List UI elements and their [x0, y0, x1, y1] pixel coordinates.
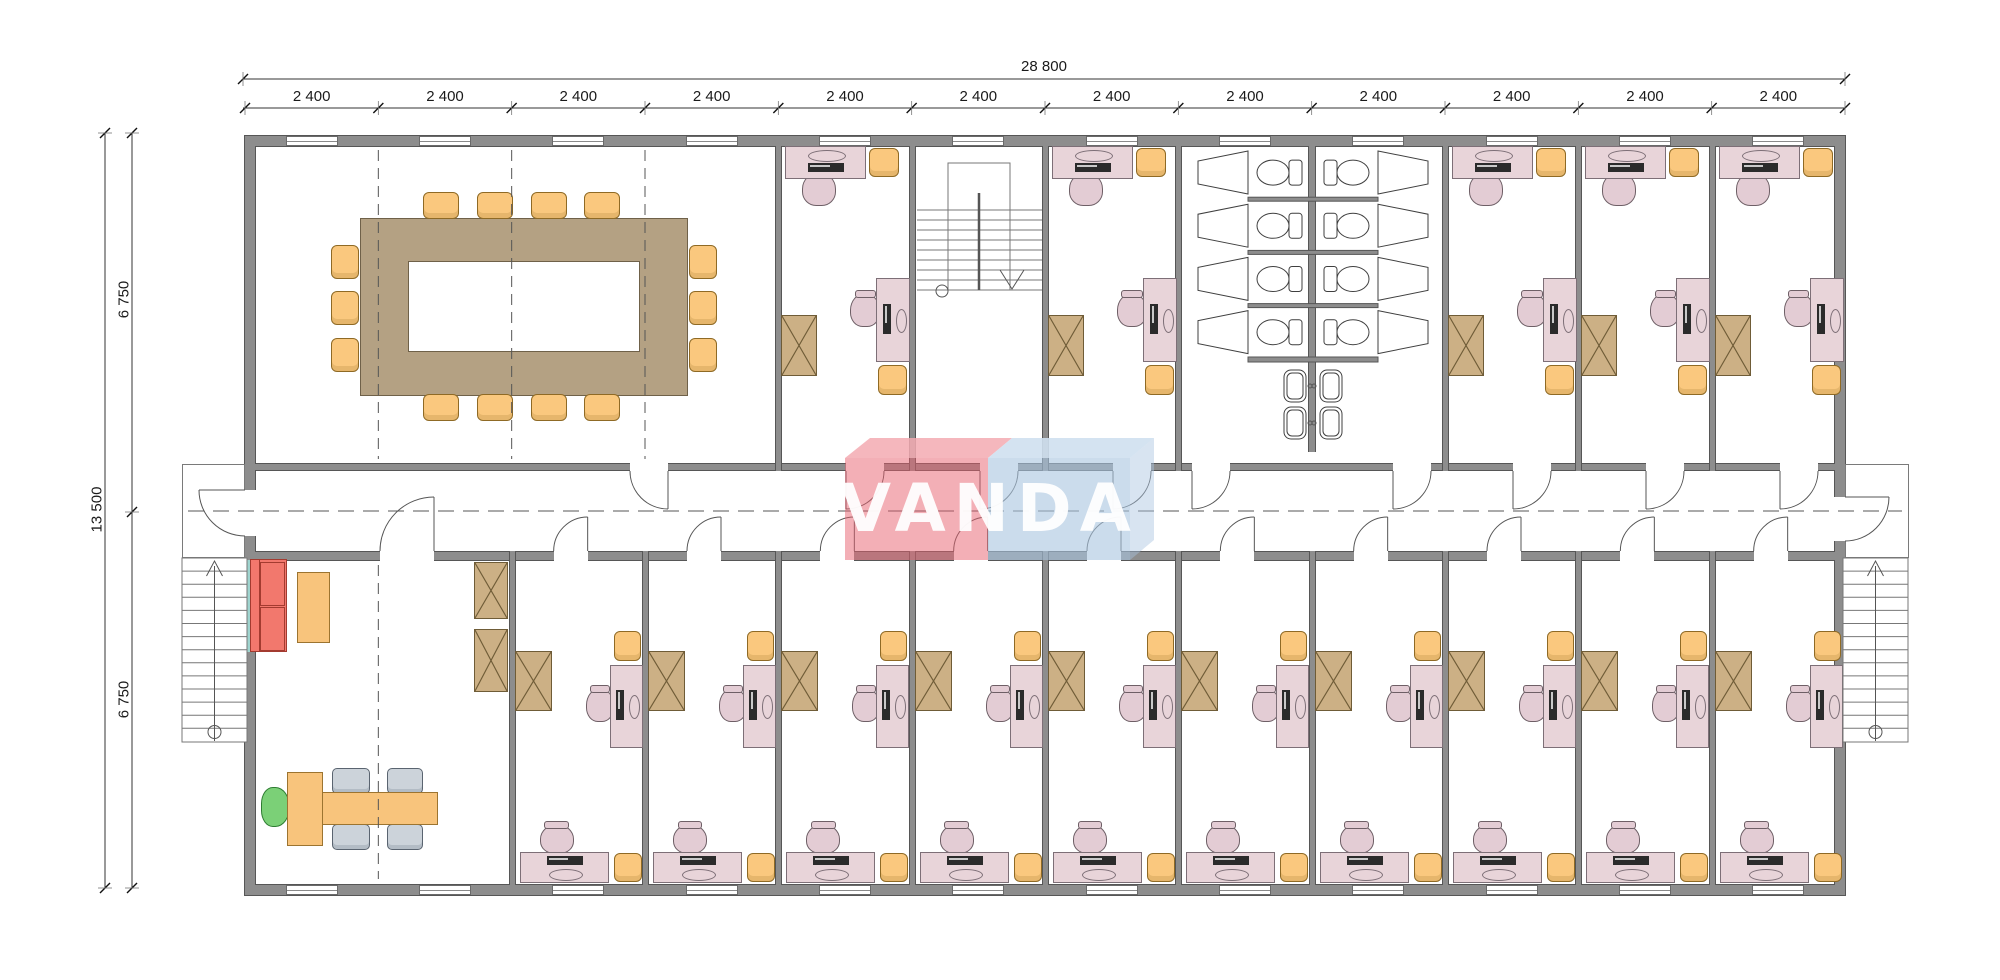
- dim-total-width: 28 800: [994, 58, 1094, 75]
- window-bottom: [1352, 885, 1404, 895]
- door-opening: [1192, 463, 1230, 471]
- computer-icon: [883, 304, 891, 334]
- desk: [1010, 665, 1043, 748]
- dim-bay-label: 2 400: [415, 88, 475, 104]
- cabinet: [781, 651, 818, 711]
- guest-armchair: [1136, 148, 1166, 177]
- computer-icon: [1817, 304, 1825, 334]
- computer-icon: [1016, 690, 1024, 720]
- guest-armchair: [1680, 853, 1708, 882]
- office-chair: [1740, 824, 1774, 854]
- window-bottom: [1219, 885, 1271, 895]
- window-top: [286, 136, 338, 146]
- office-chair: [540, 824, 574, 854]
- computer-icon: [1213, 856, 1249, 865]
- window-bottom: [1619, 885, 1671, 895]
- computer-icon: [947, 856, 983, 865]
- door-opening: [687, 551, 721, 561]
- dim-bay-label: 2 400: [282, 88, 342, 104]
- dim-bay-label: 2 400: [548, 88, 608, 104]
- cabinet: [474, 629, 508, 692]
- computer-icon: [882, 690, 890, 720]
- window-bottom: [686, 885, 738, 895]
- sofa-backrest: [251, 560, 260, 651]
- partition-wall: [509, 551, 516, 885]
- conference-chair: [331, 245, 359, 279]
- door-opening: [1754, 551, 1788, 561]
- guest-armchair: [1669, 148, 1699, 177]
- desk-tray: [682, 869, 716, 881]
- desk-tray: [549, 869, 583, 881]
- guest-armchair: [747, 853, 775, 882]
- visitor-chair: [387, 824, 423, 850]
- guest-armchair: [1280, 853, 1308, 882]
- window-top: [552, 136, 604, 146]
- dim-bay-label: 2 400: [1615, 88, 1675, 104]
- desk-tray: [1082, 869, 1116, 881]
- cabinet: [1715, 315, 1751, 376]
- window-bottom: [1486, 885, 1538, 895]
- conference-chair: [531, 192, 567, 219]
- cabinet: [915, 651, 952, 711]
- door-opening: [1354, 551, 1388, 561]
- door-opening: [1487, 551, 1521, 561]
- cabinet: [1448, 315, 1484, 376]
- desk-tray: [1749, 869, 1783, 881]
- computer-icon: [616, 690, 624, 720]
- desk: [1810, 278, 1844, 362]
- desk: [1810, 665, 1843, 748]
- window-top: [1752, 136, 1804, 146]
- computer-icon: [808, 163, 844, 172]
- logo-text: VANDA: [840, 470, 1132, 547]
- desk-tray: [1029, 695, 1040, 719]
- computer-icon: [1149, 690, 1157, 720]
- desk: [920, 852, 1009, 883]
- desk-tray: [815, 869, 849, 881]
- desk: [520, 852, 609, 883]
- partition-wall: [1175, 551, 1182, 885]
- door-opening: [1646, 463, 1684, 471]
- desk-tray: [1615, 869, 1649, 881]
- desk: [653, 852, 742, 883]
- partition-wall: [642, 551, 649, 885]
- computer-icon: [1816, 690, 1824, 720]
- conference-chair: [423, 394, 459, 421]
- guest-armchair: [1536, 148, 1566, 177]
- desk-tray: [1742, 150, 1780, 162]
- desk: [1052, 146, 1133, 179]
- computer-icon: [1150, 304, 1158, 334]
- office-chair: [1473, 824, 1507, 854]
- sofa-cushion: [260, 607, 285, 651]
- office-chair: [1340, 824, 1374, 854]
- desk-tray: [896, 309, 907, 333]
- dim-half-height-lower: 6 750: [116, 660, 133, 740]
- guest-armchair: [1280, 631, 1307, 661]
- door-opening: [954, 551, 988, 561]
- entrance-door-opening: [244, 490, 256, 536]
- guest-armchair: [1547, 631, 1574, 661]
- cabinet: [1181, 651, 1218, 711]
- partition-wall: [775, 146, 782, 471]
- desk-tray: [1215, 869, 1249, 881]
- door-opening: [1620, 551, 1654, 561]
- guest-armchair: [1814, 853, 1842, 882]
- guest-armchair: [1014, 631, 1041, 661]
- computer-icon: [1282, 690, 1290, 720]
- desk: [1586, 852, 1675, 883]
- guest-armchair: [1680, 631, 1707, 661]
- guest-armchair: [1147, 853, 1175, 882]
- conference-chair: [477, 192, 513, 219]
- office-chair: [1073, 824, 1107, 854]
- guest-armchair: [614, 853, 642, 882]
- conference-chair: [423, 192, 459, 219]
- conference-chair: [689, 291, 717, 325]
- desk-tray: [808, 150, 846, 162]
- guest-armchair: [878, 365, 907, 395]
- cabinet: [1048, 651, 1085, 711]
- entrance-door-opening: [1834, 497, 1846, 541]
- conference-chair: [477, 394, 513, 421]
- desk: [1676, 278, 1710, 362]
- computer-icon: [1683, 304, 1691, 334]
- window-bottom: [1752, 885, 1804, 895]
- desk: [743, 665, 776, 748]
- desk-tray: [949, 869, 983, 881]
- guest-armchair: [1414, 631, 1441, 661]
- computer-icon: [1682, 690, 1690, 720]
- desk-tray: [1695, 695, 1706, 719]
- dim-bay-label: 2 400: [1215, 88, 1275, 104]
- computer-icon: [1416, 690, 1424, 720]
- desk-tray: [1295, 695, 1306, 719]
- guest-armchair: [1147, 631, 1174, 661]
- entrance-landing-left: [182, 464, 245, 558]
- guest-armchair: [747, 631, 774, 661]
- guest-armchair: [869, 148, 899, 177]
- dim-bay-label: 2 400: [815, 88, 875, 104]
- cabinet: [515, 651, 552, 711]
- desk-tray: [1482, 869, 1516, 881]
- guest-armchair: [614, 631, 641, 661]
- computer-icon: [1347, 856, 1383, 865]
- dim-bay-label: 2 400: [1748, 88, 1808, 104]
- guest-armchair: [880, 853, 908, 882]
- door-opening: [1780, 463, 1818, 471]
- computer-icon: [813, 856, 849, 865]
- desk: [1053, 852, 1142, 883]
- conference-chair: [331, 338, 359, 372]
- door-opening: [1393, 463, 1431, 471]
- cabinet: [1315, 651, 1352, 711]
- desk: [1410, 665, 1443, 748]
- guest-armchair: [1803, 148, 1833, 177]
- computer-icon: [1075, 163, 1111, 172]
- window-top: [1352, 136, 1404, 146]
- conference-chair: [531, 394, 567, 421]
- conference-chair: [584, 394, 620, 421]
- partition-wall: [1709, 551, 1716, 885]
- window-top: [1486, 136, 1538, 146]
- window-bottom: [819, 885, 871, 895]
- computer-icon: [749, 690, 757, 720]
- computer-icon: [1549, 690, 1557, 720]
- desk-tray: [1829, 695, 1840, 719]
- computer-icon: [1080, 856, 1116, 865]
- office-chair: [1606, 824, 1640, 854]
- sofa-cushion: [260, 562, 285, 606]
- desk: [1452, 146, 1533, 179]
- window-top: [686, 136, 738, 146]
- window-bottom: [419, 885, 471, 895]
- guest-armchair: [1145, 365, 1174, 395]
- computer-icon: [1747, 856, 1783, 865]
- partition-wall: [775, 551, 782, 885]
- guest-armchair: [1814, 631, 1841, 661]
- window-top: [419, 136, 471, 146]
- office-chair: [1206, 824, 1240, 854]
- computer-icon: [1608, 163, 1644, 172]
- desk: [876, 278, 910, 362]
- desk: [610, 665, 643, 748]
- window-top: [1086, 136, 1138, 146]
- computer-icon: [1550, 304, 1558, 334]
- door-opening: [380, 551, 434, 561]
- desk: [1720, 852, 1809, 883]
- guest-armchair: [1812, 365, 1841, 395]
- desk-tray: [1163, 309, 1174, 333]
- computer-icon: [1480, 856, 1516, 865]
- desk: [1320, 852, 1409, 883]
- computer-icon: [1742, 163, 1778, 172]
- conference-table-opening: [408, 261, 640, 352]
- desk: [1543, 665, 1576, 748]
- partition-wall: [1042, 146, 1049, 471]
- dim-bay-label: 2 400: [948, 88, 1008, 104]
- dim-half-height-upper: 6 750: [116, 260, 133, 340]
- desk-tray: [1349, 869, 1383, 881]
- desk: [876, 665, 909, 748]
- office-chair: [673, 824, 707, 854]
- desk-tray: [1075, 150, 1113, 162]
- partition-wall: [1442, 551, 1449, 885]
- desk-tray: [1162, 695, 1173, 719]
- window-bottom: [552, 885, 604, 895]
- window-top: [1219, 136, 1271, 146]
- window-top: [952, 136, 1004, 146]
- desk-tray: [1696, 309, 1707, 333]
- director-desk: [287, 772, 323, 846]
- partition-wall: [1442, 146, 1449, 471]
- desk-tray: [1563, 309, 1574, 333]
- desk-tray: [1475, 150, 1513, 162]
- partition-wall: [1309, 551, 1316, 885]
- desk: [1585, 146, 1666, 179]
- partition-wall: [909, 551, 916, 885]
- desk-tray: [1830, 309, 1841, 333]
- computer-icon: [1475, 163, 1511, 172]
- window-top: [819, 136, 871, 146]
- desk-tray: [1562, 695, 1573, 719]
- desk: [1543, 278, 1577, 362]
- desk: [1186, 852, 1275, 883]
- desk: [1143, 665, 1176, 748]
- window-bottom: [952, 885, 1004, 895]
- guest-armchair: [1414, 853, 1442, 882]
- cabinet: [648, 651, 685, 711]
- desk-tray: [1429, 695, 1440, 719]
- coffee-table: [297, 572, 330, 643]
- toilet-centre-wall: [1308, 146, 1316, 452]
- dim-bay-label: 2 400: [1348, 88, 1408, 104]
- computer-icon: [1613, 856, 1649, 865]
- office-chair: [940, 824, 974, 854]
- dim-bay-label: 2 400: [1482, 88, 1542, 104]
- partition-wall: [1042, 551, 1049, 885]
- partition-wall: [1575, 551, 1582, 885]
- desk-tray: [1608, 150, 1646, 162]
- conference-chair: [584, 192, 620, 219]
- guest-armchair: [880, 631, 907, 661]
- cabinet: [781, 315, 817, 376]
- door-opening: [630, 463, 668, 471]
- cabinet: [1048, 315, 1084, 376]
- cabinet: [1715, 651, 1752, 711]
- visitor-chair: [387, 768, 423, 794]
- door-opening: [820, 551, 854, 561]
- desk: [785, 146, 866, 179]
- guest-armchair: [1014, 853, 1042, 882]
- director-meeting-table: [322, 792, 438, 825]
- conference-chair: [689, 245, 717, 279]
- entrance-landing-right: [1845, 464, 1909, 558]
- office-chair: [806, 824, 840, 854]
- dim-bay-label: 2 400: [1082, 88, 1142, 104]
- conference-chair: [689, 338, 717, 372]
- window-bottom: [1086, 885, 1138, 895]
- cabinet: [474, 562, 508, 619]
- dim-bay-label: 2 400: [682, 88, 742, 104]
- cabinet: [1581, 315, 1617, 376]
- computer-icon: [547, 856, 583, 865]
- door-opening: [554, 551, 588, 561]
- sofa: [250, 559, 287, 652]
- cabinet: [1448, 651, 1485, 711]
- desk-tray: [762, 695, 773, 719]
- dim-total-height: 13 500: [89, 470, 106, 550]
- guest-armchair: [1545, 365, 1574, 395]
- desk: [786, 852, 875, 883]
- computer-icon: [680, 856, 716, 865]
- desk: [1453, 852, 1542, 883]
- desk-tray: [629, 695, 640, 719]
- visitor-chair: [332, 824, 370, 850]
- desk: [1676, 665, 1709, 748]
- guest-armchair: [1678, 365, 1707, 395]
- conference-chair: [331, 291, 359, 325]
- visitor-chair: [332, 768, 370, 794]
- cabinet: [1581, 651, 1618, 711]
- guest-armchair: [1547, 853, 1575, 882]
- desk: [1719, 146, 1800, 179]
- executive-chair: [261, 787, 290, 827]
- desk: [1276, 665, 1309, 748]
- window-top: [1619, 136, 1671, 146]
- door-opening: [1220, 551, 1254, 561]
- desk-tray: [895, 695, 906, 719]
- window-bottom: [286, 885, 338, 895]
- door-opening: [1087, 551, 1121, 561]
- door-opening: [1513, 463, 1551, 471]
- desk: [1143, 278, 1177, 362]
- floor-plan: 28 800 13 500 6 750 6 750 VANDA: [0, 0, 2000, 980]
